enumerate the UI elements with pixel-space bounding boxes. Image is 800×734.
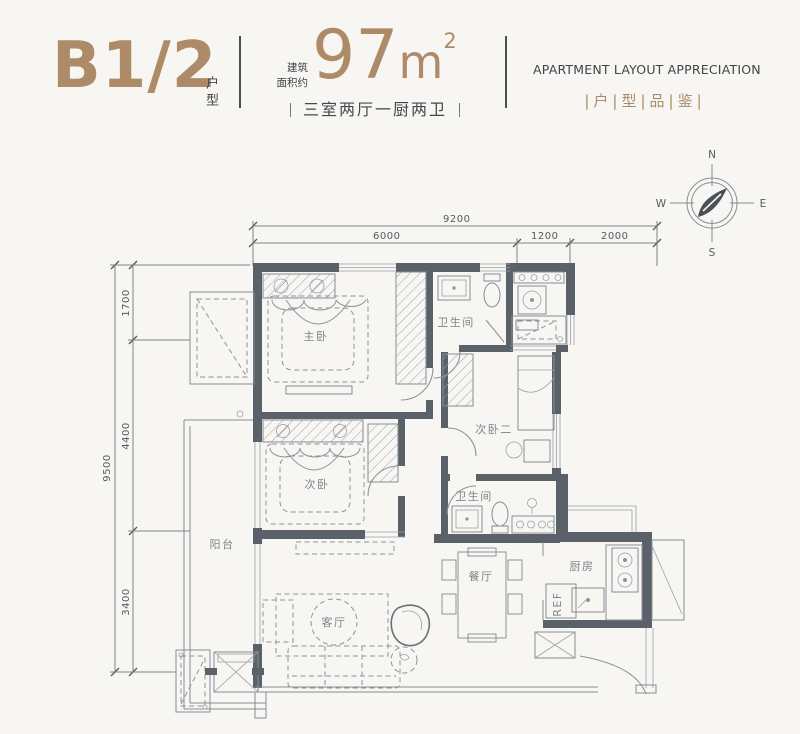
room-kitchen: REF 厨房 [543,542,642,620]
kitchen-bay-window [652,540,684,620]
room-label-balcony: 阳台 [210,537,235,551]
compass-south: S [709,247,716,259]
compass-icon: N S W E [656,149,767,259]
room-label-kitchen: 厨房 [570,560,595,573]
dim-left-b: 4400 [121,422,132,449]
room-label-living: 客厅 [322,615,347,629]
room-bathroom-top: 卫生间 [437,272,564,342]
equipment-box-bottom [535,632,575,658]
dim-top-c: 2000 [601,231,628,242]
dim-left-a: 1700 [121,289,132,316]
dimension-top: 9200 6000 1200 2000 [249,214,661,266]
room-master-bedroom: 主卧 [263,272,426,394]
room-label-bath-mid: 卫生间 [455,489,493,503]
room-bedroom-third: 次卧二 [443,354,554,462]
dim-left-c: 3400 [121,588,132,615]
room-label-bed-second: 次卧 [305,477,330,491]
room-dining: 餐厅 [442,548,522,642]
fridge-label: REF [551,591,564,616]
room-label-dining: 餐厅 [469,569,494,583]
room-bathroom-mid: 卫生间 [452,489,555,533]
service-shaft [568,506,636,532]
ac-platform-upper-left [190,292,254,384]
dim-top-total: 9200 [443,214,470,225]
dim-top-b: 1200 [531,231,558,242]
room-balcony: 阳台 [176,537,264,712]
floor-plan: N S W E 9200 6000 1200 2000 9500 1700 44 [0,0,800,734]
room-living: 客厅 [263,594,429,688]
dim-top-a: 6000 [373,231,400,242]
room-label-bath-top: 卫生间 [437,315,475,329]
dimension-left: 9500 1700 4400 3400 [102,261,250,676]
room-label-master: 主卧 [304,330,329,343]
compass-west: W [656,198,667,210]
dim-left-total: 9500 [102,454,113,481]
compass-east: E [760,198,767,210]
room-label-bed-third: 次卧二 [475,422,513,436]
compass-north: N [708,149,716,161]
